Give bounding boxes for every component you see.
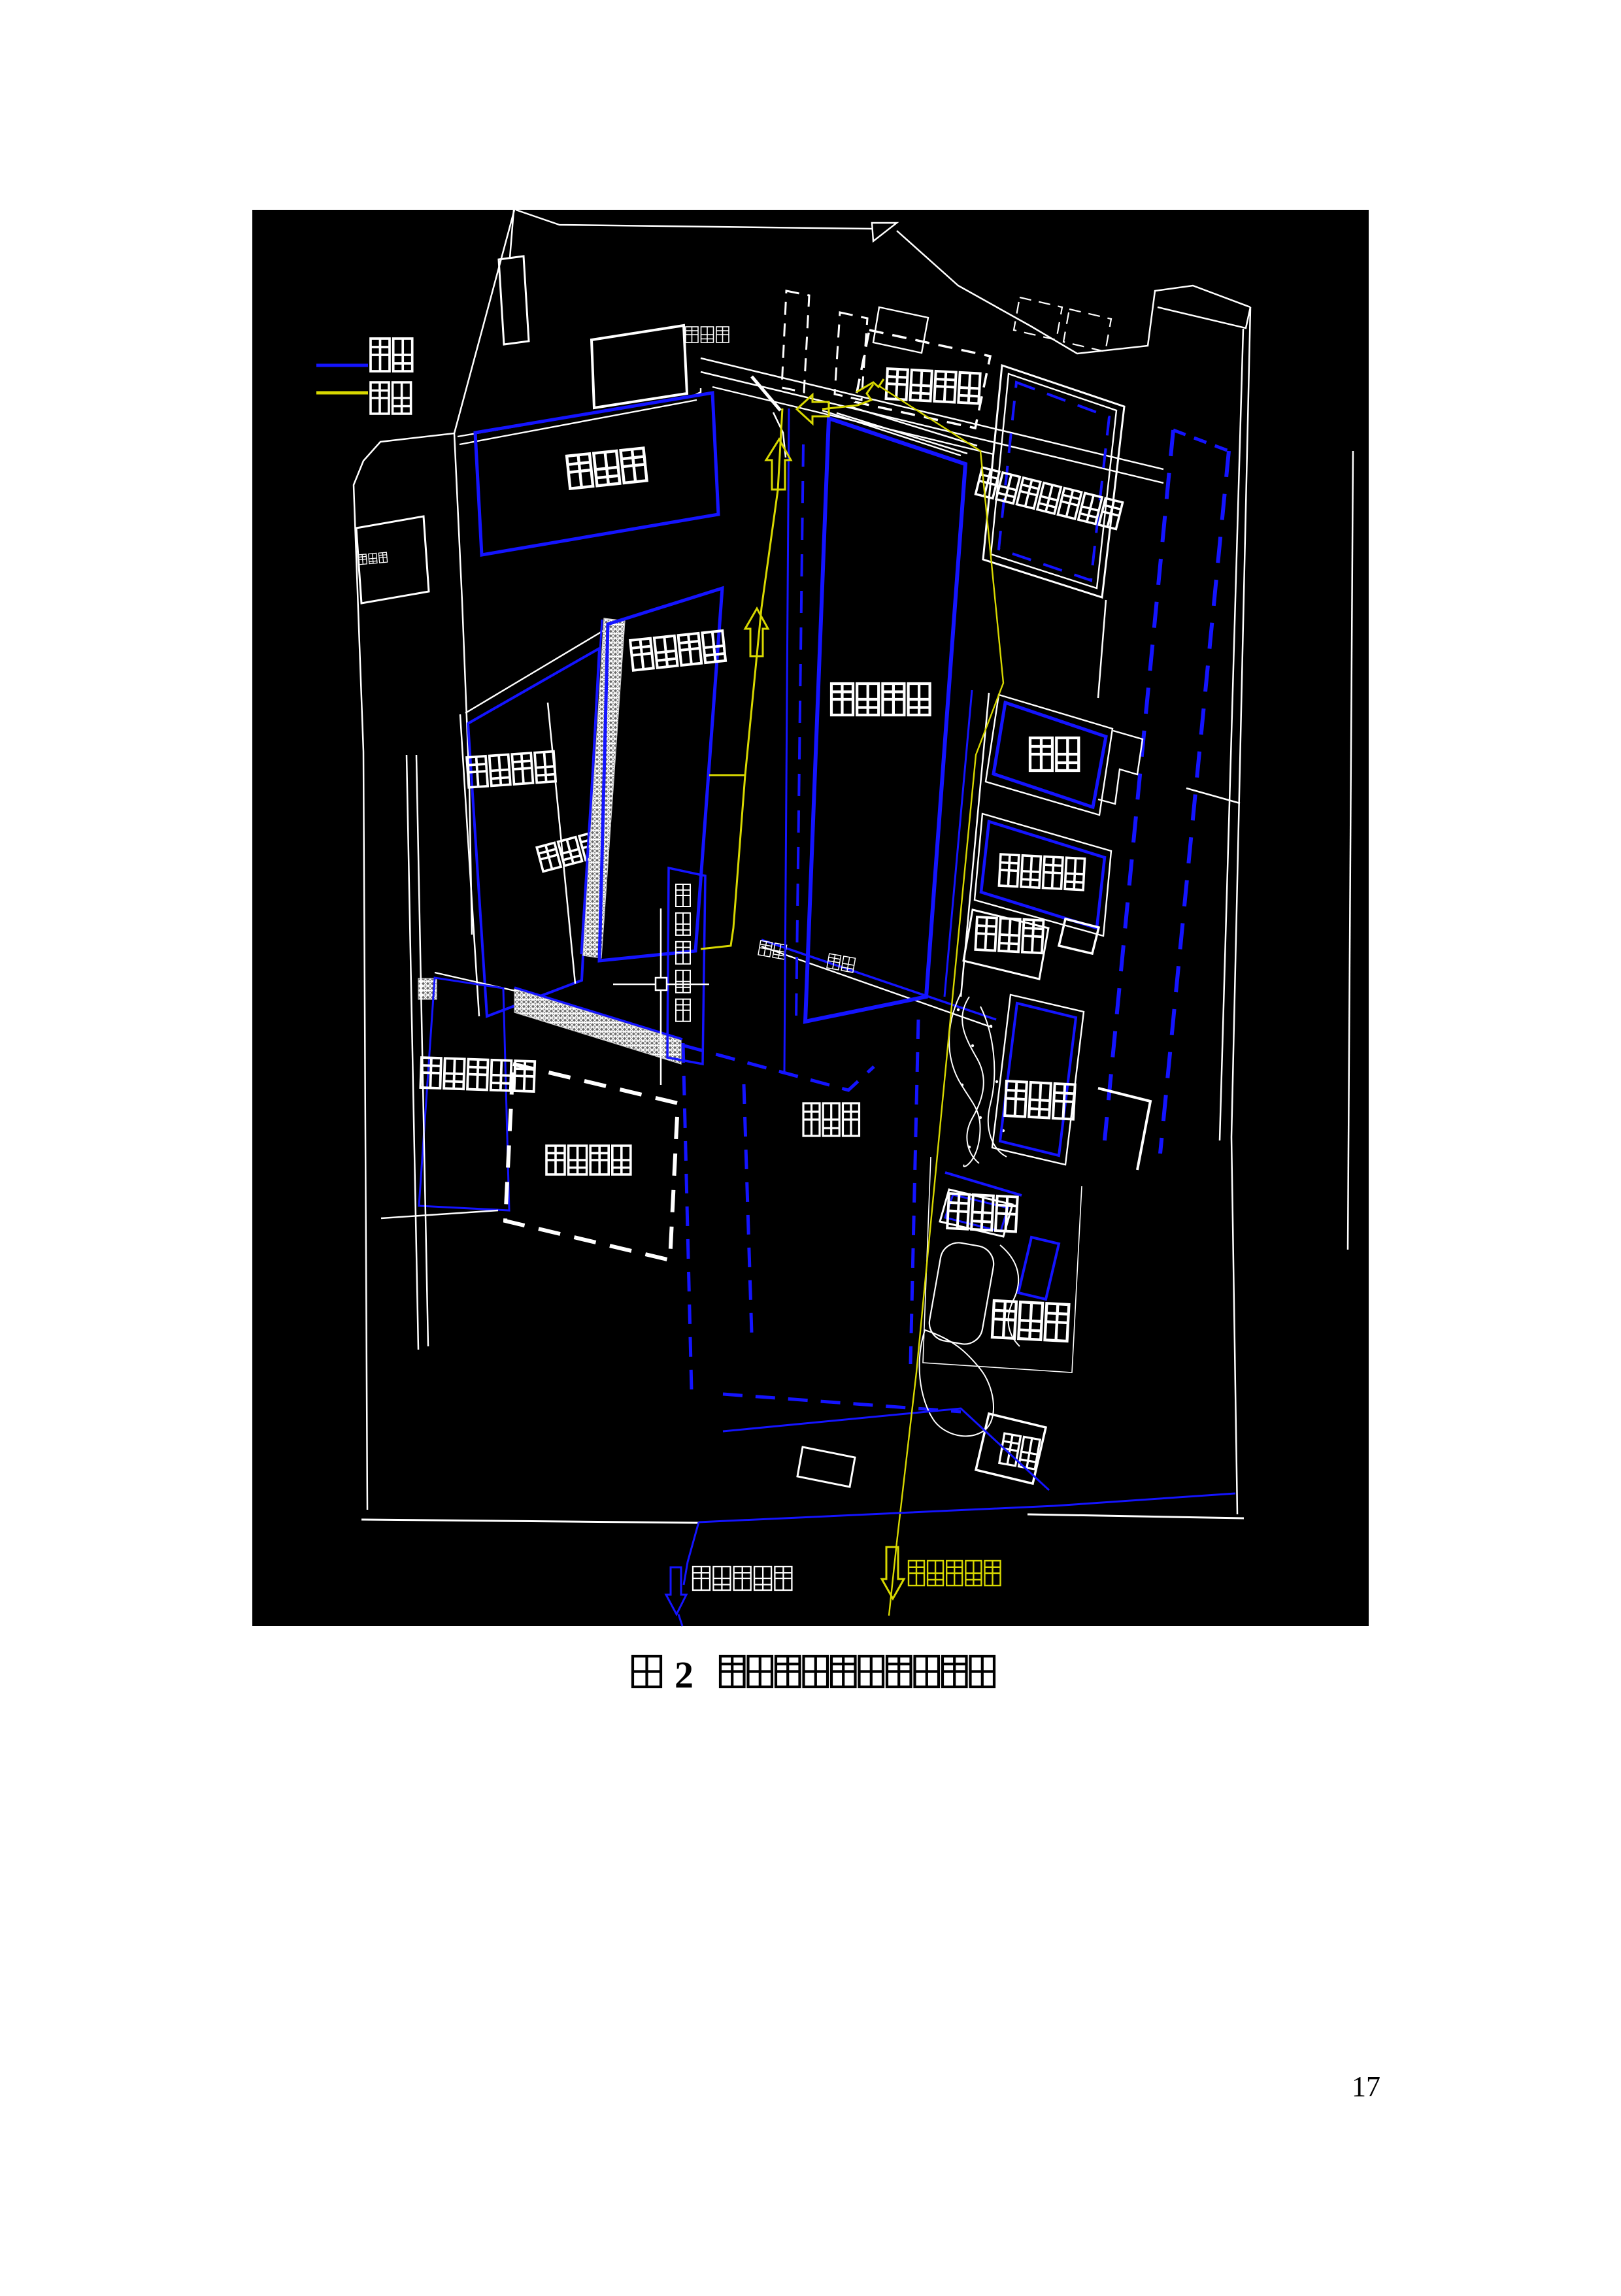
svg-text:2: 2 bbox=[675, 1654, 694, 1696]
svg-text:17: 17 bbox=[1352, 2071, 1380, 2103]
